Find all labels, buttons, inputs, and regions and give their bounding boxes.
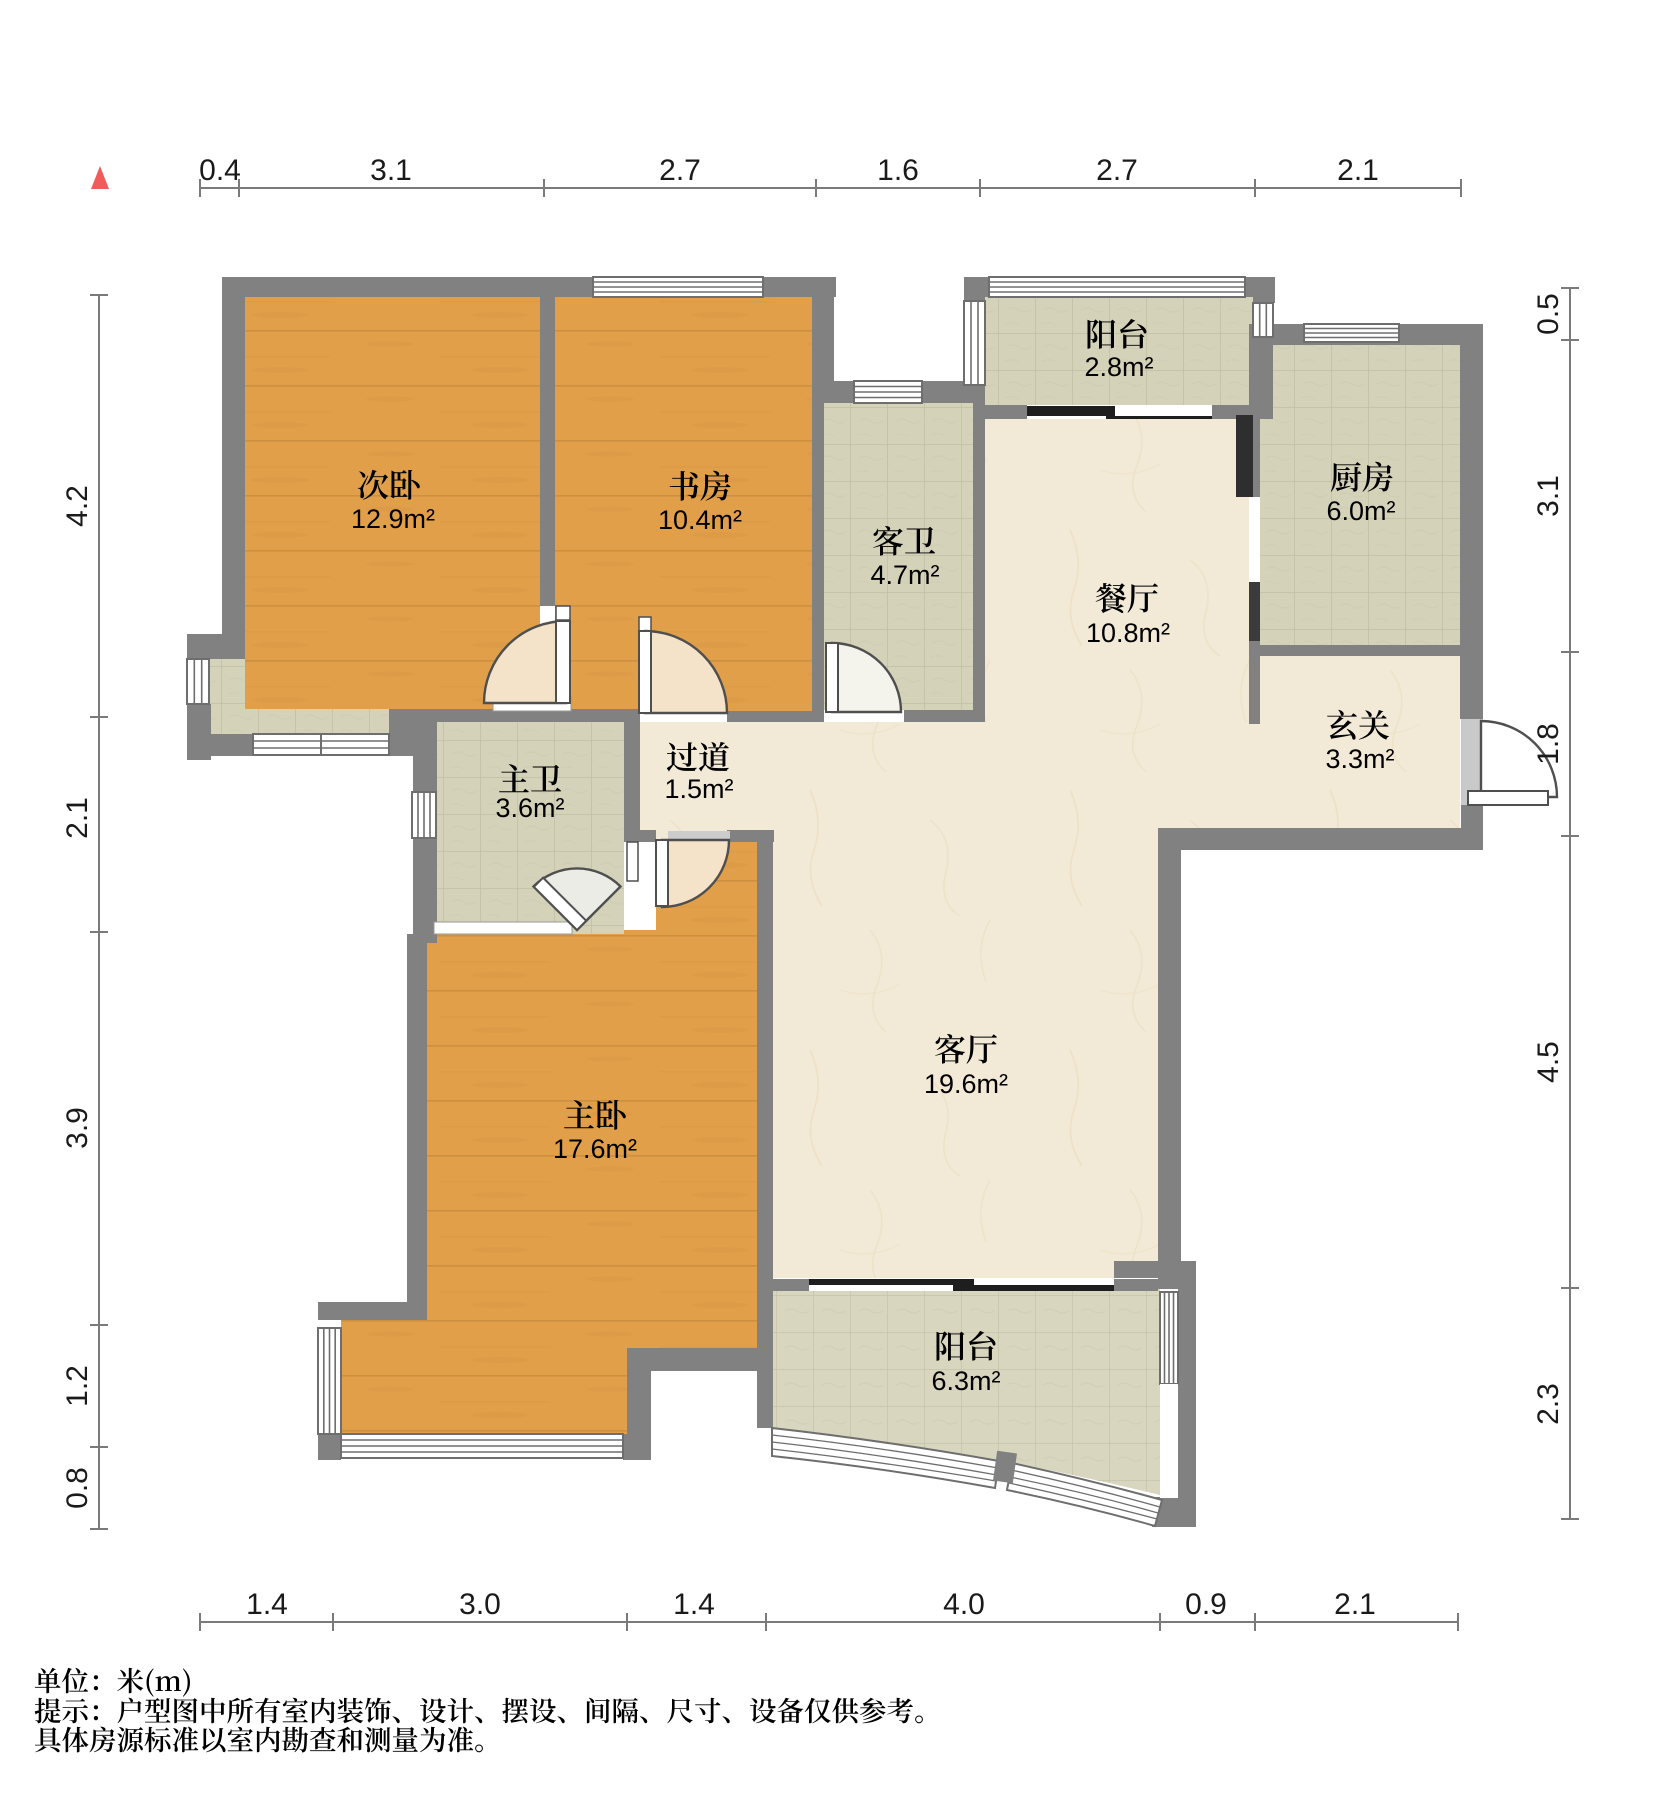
svg-text:10.4m²: 10.4m² <box>658 505 742 535</box>
svg-text:1.4: 1.4 <box>246 1588 288 1621</box>
svg-text:3.9: 3.9 <box>61 1107 94 1149</box>
svg-text:2.7: 2.7 <box>659 154 701 187</box>
svg-text:3.1: 3.1 <box>1532 475 1565 517</box>
svg-text:2.3: 2.3 <box>1532 1383 1565 1425</box>
svg-text:4.2: 4.2 <box>61 485 94 527</box>
svg-text:10.8m²: 10.8m² <box>1086 618 1170 648</box>
svg-text:12.9m²: 12.9m² <box>351 504 435 534</box>
svg-text:0.9: 0.9 <box>1185 1588 1227 1621</box>
svg-text:1.4: 1.4 <box>673 1588 715 1621</box>
svg-text:1.8: 1.8 <box>1532 723 1565 765</box>
svg-text:1.6: 1.6 <box>877 154 919 187</box>
svg-text:4.7m²: 4.7m² <box>870 560 939 590</box>
svg-text:3.6m²: 3.6m² <box>495 793 564 823</box>
svg-text:0.4: 0.4 <box>199 154 241 187</box>
svg-text:3.1: 3.1 <box>370 154 412 187</box>
svg-text:4.0: 4.0 <box>943 1588 985 1621</box>
svg-text:2.8m²: 2.8m² <box>1084 352 1153 382</box>
svg-text:17.6m²: 17.6m² <box>553 1134 637 1164</box>
svg-text:1.5m²: 1.5m² <box>664 774 733 804</box>
svg-text:4.5: 4.5 <box>1532 1041 1565 1083</box>
svg-text:3.3m²: 3.3m² <box>1325 744 1394 774</box>
svg-text:6.3m²: 6.3m² <box>931 1366 1000 1396</box>
svg-text:2.1: 2.1 <box>1334 1588 1376 1621</box>
svg-text:1.2: 1.2 <box>61 1365 94 1407</box>
svg-text:6.0m²: 6.0m² <box>1326 496 1395 526</box>
svg-text:0.5: 0.5 <box>1532 293 1565 335</box>
svg-text:0.8: 0.8 <box>61 1467 94 1509</box>
svg-text:2.7: 2.7 <box>1096 154 1138 187</box>
svg-text:2.1: 2.1 <box>1337 154 1379 187</box>
svg-text:2.1: 2.1 <box>61 797 94 839</box>
svg-text:19.6m²: 19.6m² <box>924 1069 1008 1099</box>
svg-text:3.0: 3.0 <box>459 1588 501 1621</box>
